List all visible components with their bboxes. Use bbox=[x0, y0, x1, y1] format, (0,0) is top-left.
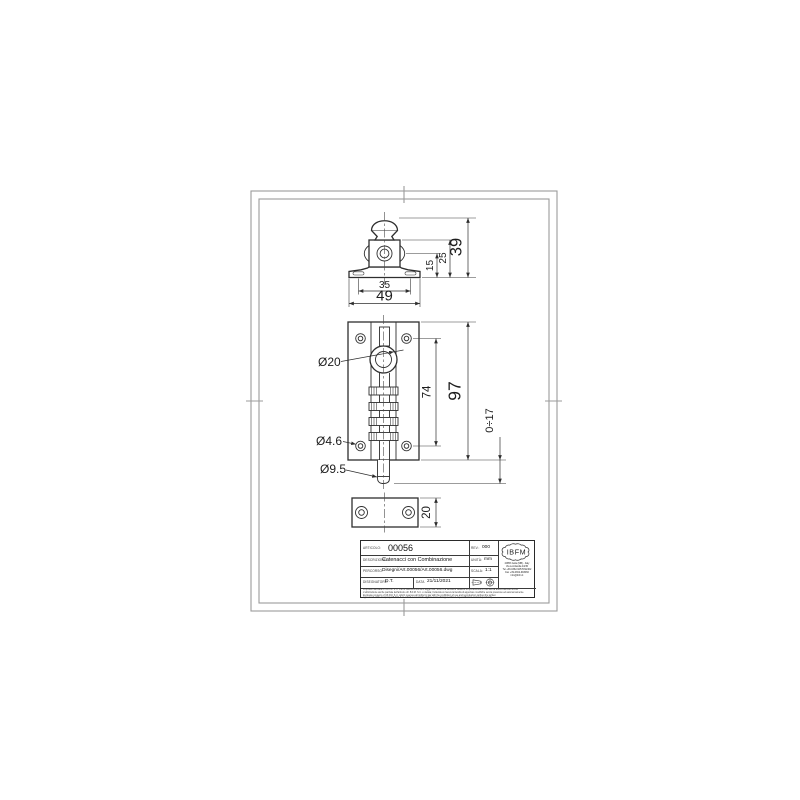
drawing-canvas: 35 49 15 25 39 Ø20 bbox=[0, 0, 800, 800]
address-block: 20853 Isola (MB) - Italy Via Lombardia 4… bbox=[499, 562, 535, 577]
dim-74: 74 bbox=[422, 385, 434, 398]
keeper-hole bbox=[356, 507, 368, 519]
article-value: 00056 bbox=[388, 544, 413, 553]
date-label: DATA bbox=[416, 581, 424, 584]
tb-line bbox=[469, 541, 470, 588]
bolt-top bbox=[380, 327, 390, 346]
projection-symbol-icon bbox=[471, 578, 497, 587]
tb-line bbox=[361, 555, 498, 556]
path-value: Disegni/Art.00056/Art.00056.dwg bbox=[382, 569, 452, 574]
fixing-hole bbox=[356, 441, 366, 451]
dim-49: 49 bbox=[376, 288, 393, 305]
scale-value: 1:1 bbox=[485, 569, 492, 574]
disclaimer-block: Proprietà riservata di I.B.F.M. S.r.l. c… bbox=[363, 589, 534, 600]
article-label: ARTICOLO: bbox=[363, 547, 381, 550]
dim-15: 15 bbox=[425, 260, 436, 272]
dim-97: 97 bbox=[445, 381, 465, 400]
dim-20: 20 bbox=[421, 506, 433, 519]
unit-label: UNITÀ: bbox=[471, 559, 482, 562]
path-label: PERCORSO: bbox=[363, 570, 383, 573]
address-line: info@ibfm.it bbox=[499, 574, 535, 577]
drafter-value: D.T. bbox=[385, 580, 394, 585]
rev-label: REV.: bbox=[471, 547, 480, 550]
fixing-hole bbox=[402, 441, 412, 451]
unit-value: mm bbox=[484, 558, 492, 563]
dim-39: 39 bbox=[448, 238, 466, 256]
top-view-dimensions: 35 49 15 25 39 bbox=[349, 218, 476, 307]
tb-line bbox=[413, 577, 414, 588]
rev-value: 000 bbox=[482, 546, 490, 551]
description-value: Catenacci con Combinazione bbox=[382, 558, 452, 563]
dim-knob-dia: Ø20 bbox=[318, 355, 341, 369]
disclaimer-line: agreement of the company I.B.F.M. S.r.l.… bbox=[363, 597, 534, 600]
title-block: ARTICOLO: 00056 REV.: 000 DESCRIZIONE: C… bbox=[360, 540, 535, 598]
ibfm-logo-text: IBFM bbox=[507, 548, 527, 557]
date-value: 21/11/2021 bbox=[427, 580, 451, 585]
front-view bbox=[348, 315, 419, 489]
dim-pin-dia: Ø9.5 bbox=[320, 462, 346, 476]
keeper-view bbox=[352, 493, 418, 533]
fixing-hole bbox=[356, 334, 366, 344]
dim-throw: 0÷17 bbox=[484, 408, 496, 432]
keeper-hole bbox=[403, 507, 415, 519]
top-view bbox=[349, 212, 420, 285]
tb-line bbox=[361, 566, 498, 567]
page: { "dims": { "inner_width": "35", "outer_… bbox=[0, 0, 800, 800]
fixing-hole bbox=[402, 334, 412, 344]
dim-hole-dia: Ø4.6 bbox=[316, 434, 342, 448]
ibfm-logo: IBFM bbox=[500, 543, 533, 561]
scale-label: SCALA: bbox=[471, 570, 483, 573]
keeper-view-dimensions: 20 bbox=[420, 498, 441, 527]
